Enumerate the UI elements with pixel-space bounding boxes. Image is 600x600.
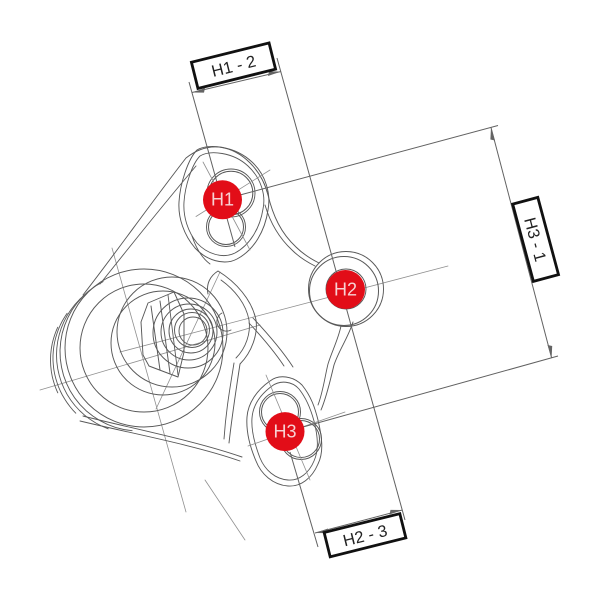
svg-text:H1: H1 xyxy=(211,190,234,210)
svg-text:H3: H3 xyxy=(273,421,296,441)
svg-text:H2: H2 xyxy=(334,279,357,299)
